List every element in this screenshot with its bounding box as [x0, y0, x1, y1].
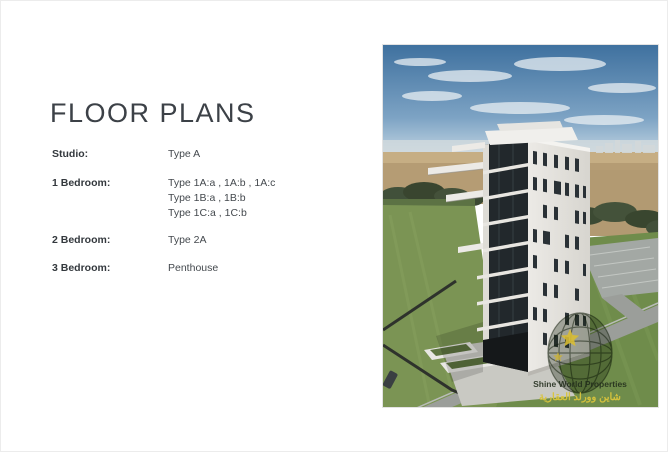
plan-value: Type 1A:a , 1A:b , 1A:c: [168, 176, 275, 191]
plan-row-2-bedroom: 2 Bedroom: Type 2A: [52, 233, 372, 248]
plan-value: Type 2A: [168, 233, 207, 248]
floor-plans-page: FLOOR PLANS Studio: Type A 1 Bedroom: Ty…: [0, 0, 668, 452]
plan-value: Type A: [168, 147, 200, 162]
plan-row-studio: Studio: Type A: [52, 147, 372, 162]
plan-label: 3 Bedroom:: [52, 261, 168, 276]
watermark-company-name-arabic: شاين وورلد العقارية: [539, 392, 621, 403]
plan-value: Penthouse: [168, 261, 218, 276]
building-rendering: Shine World Properties شاين وورلد العقار…: [383, 45, 658, 407]
plan-value: Type 1B:a , 1B:b: [168, 191, 275, 206]
plan-label: 1 Bedroom:: [52, 176, 168, 191]
plan-label: 2 Bedroom:: [52, 233, 168, 248]
building-rendering-image: Shine World Properties شاين وورلد العقار…: [383, 45, 658, 407]
plan-label: Studio:: [52, 147, 168, 162]
watermark-company-name: Shine World Properties: [533, 379, 627, 389]
page-title: FLOOR PLANS: [50, 98, 256, 129]
plan-row-3-bedroom: 3 Bedroom: Penthouse: [52, 261, 372, 276]
plan-row-1-bedroom: 1 Bedroom: Type 1A:a , 1A:b , 1A:c Type …: [52, 176, 372, 221]
floor-plan-list: Studio: Type A 1 Bedroom: Type 1A:a , 1A…: [52, 147, 372, 276]
plan-value: Type 1C:a , 1C:b: [168, 206, 275, 221]
